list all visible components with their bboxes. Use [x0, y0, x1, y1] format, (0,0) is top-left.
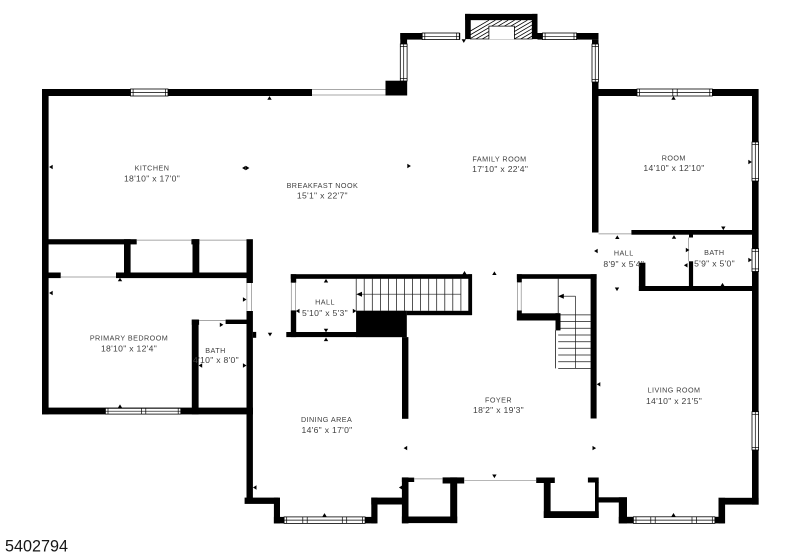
svg-text:DINING AREA: DINING AREA [301, 415, 352, 424]
svg-text:18'10" x 17'0": 18'10" x 17'0" [124, 174, 180, 184]
svg-text:8'9" x 5'4": 8'9" x 5'4" [603, 259, 644, 269]
svg-text:BATH: BATH [704, 248, 724, 257]
svg-text:HALL: HALL [614, 249, 634, 258]
svg-text:18'10" x 12'4": 18'10" x 12'4" [101, 344, 157, 354]
svg-text:FAMILY ROOM: FAMILY ROOM [472, 155, 526, 164]
svg-text:ROOM: ROOM [662, 153, 686, 162]
svg-text:FOYER: FOYER [485, 396, 512, 405]
svg-text:PRIMARY BEDROOM: PRIMARY BEDROOM [90, 334, 168, 343]
svg-text:BATH: BATH [205, 346, 225, 355]
svg-text:KITCHEN: KITCHEN [135, 164, 170, 173]
svg-text:5402794: 5402794 [5, 538, 68, 555]
svg-text:14'10" x 12'10": 14'10" x 12'10" [643, 163, 704, 173]
svg-text:18'2" x 19'3": 18'2" x 19'3" [473, 405, 524, 415]
svg-text:5'9" x 5'0": 5'9" x 5'0" [694, 258, 735, 268]
svg-text:LIVING ROOM: LIVING ROOM [648, 386, 701, 395]
svg-text:5'10" x 5'3": 5'10" x 5'3" [302, 308, 348, 318]
svg-text:HALL: HALL [315, 298, 335, 307]
svg-text:15'1" x 22'7": 15'1" x 22'7" [297, 191, 348, 201]
svg-text:4'10" x 8'0": 4'10" x 8'0" [193, 355, 239, 365]
svg-text:17'10" x 22'4": 17'10" x 22'4" [472, 164, 528, 174]
svg-text:BREAKFAST NOOK: BREAKFAST NOOK [287, 181, 359, 190]
svg-text:14'6" x 17'0": 14'6" x 17'0" [301, 425, 352, 435]
svg-text:14'10" x 21'5": 14'10" x 21'5" [646, 396, 702, 406]
